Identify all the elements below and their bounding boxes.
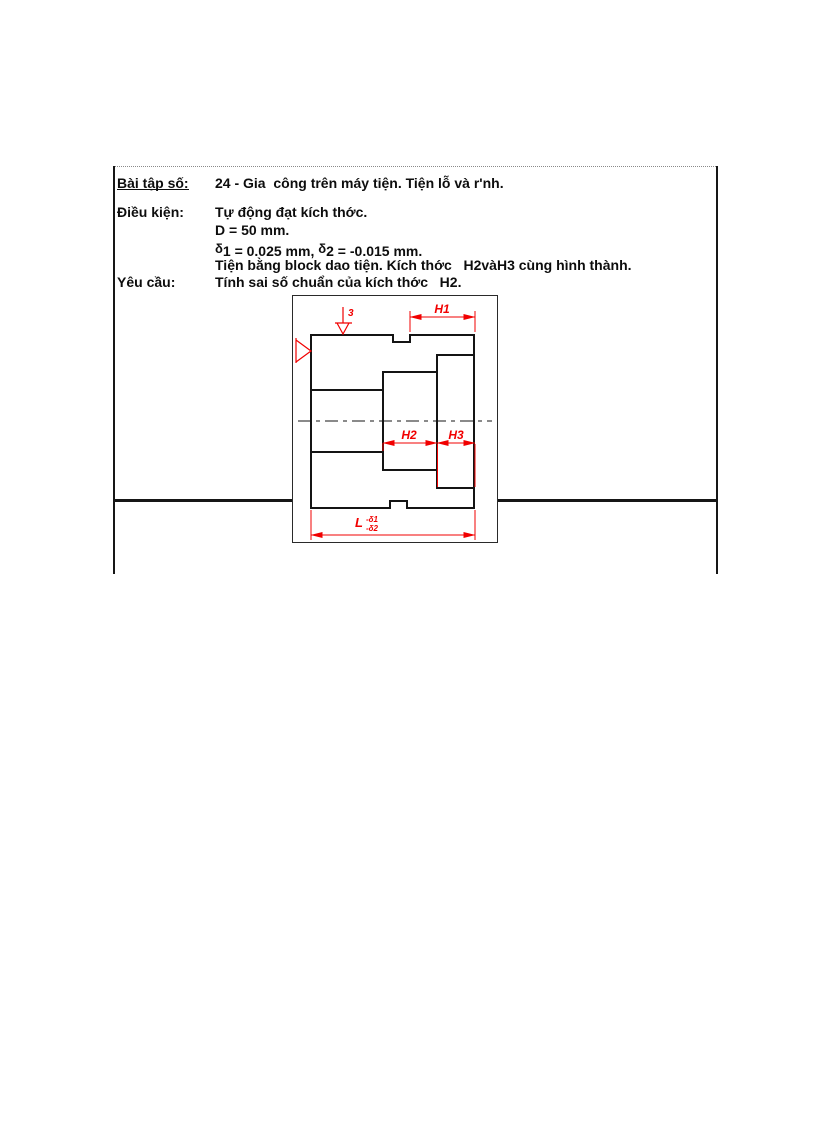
h2-dimension-label: H2 bbox=[401, 428, 417, 442]
condition-line-2: D = 50 mm. bbox=[215, 222, 289, 239]
document-page: Bài tập số: 24 - Gia công trên máy tiện.… bbox=[0, 0, 816, 1123]
delta1-symbol: δ bbox=[215, 241, 223, 256]
l-tolerance-lower: -δ2 bbox=[366, 524, 379, 533]
condition-line-4: Tiện bằng block dao tiện. Kích thớc H2và… bbox=[215, 257, 632, 274]
l-tolerance-upper: -δ1 bbox=[366, 515, 379, 524]
requirement-text: Tính sai số chuẩn của kích thớc H2. bbox=[215, 274, 461, 291]
delta2-symbol: δ bbox=[318, 241, 326, 256]
row-label-requirement: Yêu cầu: bbox=[117, 274, 175, 291]
table-top-border bbox=[113, 166, 718, 167]
drawing-frame bbox=[293, 296, 498, 543]
table-left-border bbox=[113, 166, 115, 574]
l-dimension-label: L bbox=[355, 515, 363, 530]
surface-finish-grade: 3 bbox=[348, 308, 354, 319]
condition-line-1: Tự động đạt kích thớc. bbox=[215, 204, 367, 221]
table-right-border bbox=[716, 166, 718, 574]
row-label-conditions: Điều kiện: bbox=[117, 204, 184, 221]
h3-dimension-label: H3 bbox=[448, 428, 464, 442]
row-label-exercise-number: Bài tập số: bbox=[117, 175, 189, 192]
h1-dimension-label: H1 bbox=[434, 302, 450, 316]
technical-drawing: H1 H2 H3 L -δ1 -δ2 3 bbox=[292, 295, 498, 543]
exercise-title: 24 - Gia công trên máy tiện. Tiện lỗ và … bbox=[215, 175, 504, 192]
exercise-number-label-struck: Bài tập số: bbox=[117, 175, 189, 192]
